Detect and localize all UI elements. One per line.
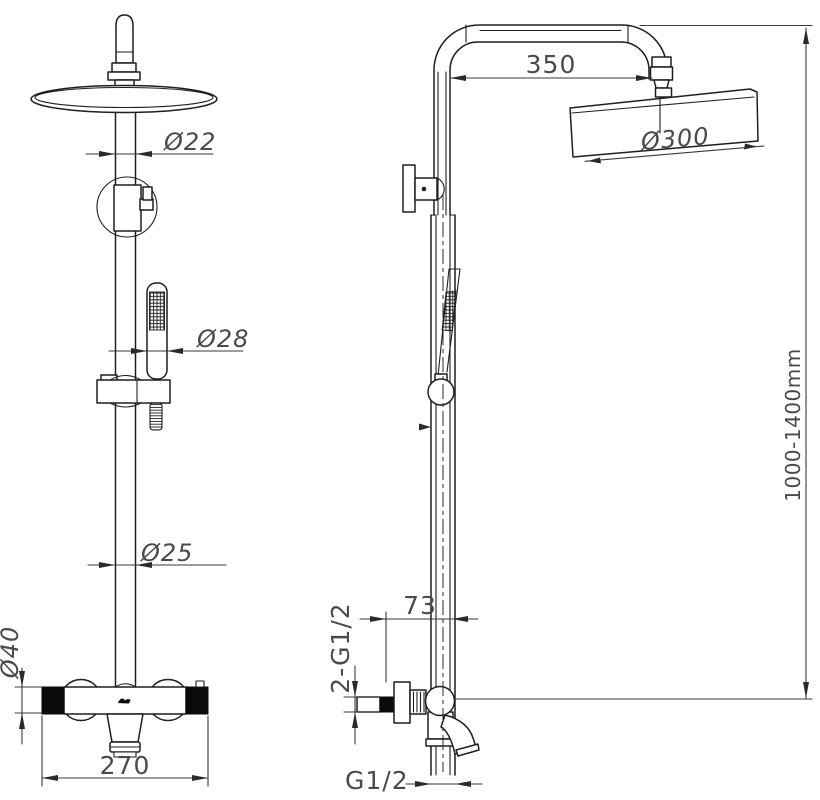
inlet-seal	[380, 697, 393, 712]
dimension-riser-25: Ø25	[88, 539, 226, 568]
dim-label-40: Ø40	[0, 626, 24, 679]
dim-label-25: Ø25	[140, 539, 193, 567]
pointer-arrow	[419, 424, 431, 431]
dim-label-inlet: 2-G1/2	[326, 602, 355, 693]
mixer-valve-front	[42, 680, 208, 758]
dimension-handshower-28: Ø28	[109, 325, 249, 354]
dimension-valvebody-40: Ø40	[0, 626, 42, 744]
wall-bracket-front	[97, 177, 157, 237]
side-view: 350 Ø300 1000-1400mm 73 2-G1	[326, 25, 812, 795]
technical-drawing-canvas: Ø22 Ø28 Ø25 Ø40 270	[0, 0, 820, 800]
dimension-outlet-thread: G1/2	[345, 766, 482, 795]
dim-label-73: 73	[403, 591, 437, 620]
slider-bracket	[97, 375, 170, 430]
valve-joint	[426, 687, 455, 716]
top-cap	[108, 15, 140, 88]
head-ball-joint	[651, 57, 673, 97]
dimension-arm-reach-350: 350	[450, 50, 652, 81]
dim-label-270: 270	[100, 751, 151, 780]
left-handle	[42, 687, 64, 714]
slider-knob	[428, 379, 454, 405]
inlet-pipe	[357, 697, 380, 712]
dimension-inlet-thread: 2-G1/2	[326, 602, 380, 744]
mixer-valve-side	[357, 682, 479, 756]
shower-column-drawing: Ø22 Ø28 Ø25 Ø40 270	[0, 0, 820, 800]
dim-label-height: 1000-1400mm	[781, 348, 805, 501]
hand-shower-spray-face	[150, 292, 165, 330]
dimension-pipe-22: Ø22	[86, 128, 216, 157]
right-handle	[186, 687, 208, 714]
inlet-escutcheon	[394, 682, 410, 723]
front-view: Ø22 Ø28 Ø25 Ø40 270	[0, 15, 249, 786]
hand-shower-spray-edge	[442, 291, 456, 331]
hand-shower-front	[147, 283, 167, 379]
dim-label-28: Ø28	[196, 325, 249, 353]
overhead-shower-disc	[31, 86, 217, 113]
dimension-wall-offset-73: 73	[360, 591, 478, 682]
dim-label-350: 350	[526, 50, 577, 79]
threaded-rod	[150, 403, 162, 430]
dim-label-outlet: G1/2	[345, 766, 409, 795]
bracket-screw	[422, 187, 427, 192]
dim-label-22: Ø22	[163, 128, 216, 156]
